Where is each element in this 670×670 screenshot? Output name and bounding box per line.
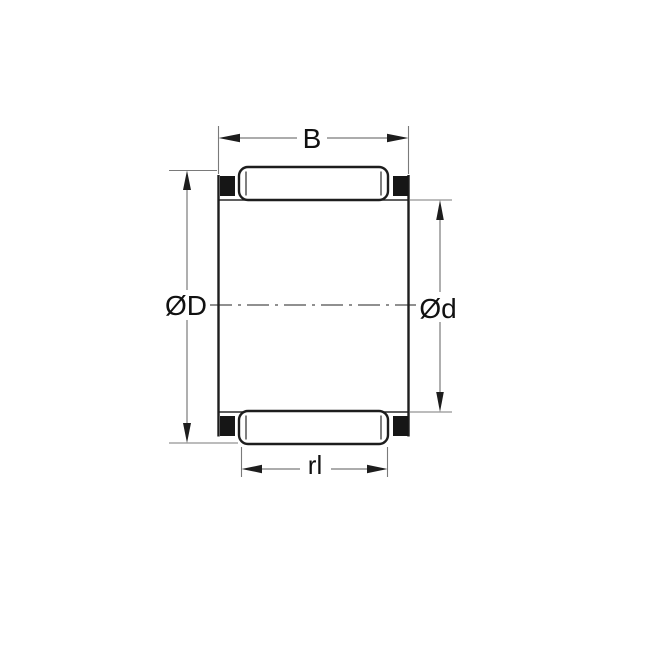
rl-label: rl <box>308 450 322 480</box>
id-label: Ød <box>419 293 456 324</box>
cage-ring-top-left <box>220 176 235 196</box>
cage-ring-bottom-right <box>393 416 408 436</box>
bearing-section-drawing: B ØD Ød <box>0 0 670 670</box>
cage-ring-bottom-left <box>220 416 235 436</box>
id-arrow-up <box>436 200 444 220</box>
dimension-id: Ød <box>410 200 457 412</box>
od-arrow-down <box>183 423 191 443</box>
dimension-od: ØD <box>165 171 238 444</box>
dimension-rl: rl <box>242 447 388 480</box>
drawing-canvas: B ØD Ød <box>0 0 670 670</box>
rl-arrow-left <box>242 465 263 473</box>
b-label: B <box>303 123 322 154</box>
od-arrow-up <box>183 171 191 191</box>
cage-ring-top-right <box>393 176 408 196</box>
id-arrow-down <box>436 392 444 412</box>
needle-roller-bottom <box>239 411 388 444</box>
needle-roller-top <box>239 167 388 200</box>
rl-arrow-right <box>367 465 388 473</box>
b-arrow-left <box>219 134 241 142</box>
b-arrow-right <box>387 134 409 142</box>
od-label: ØD <box>165 290 207 321</box>
